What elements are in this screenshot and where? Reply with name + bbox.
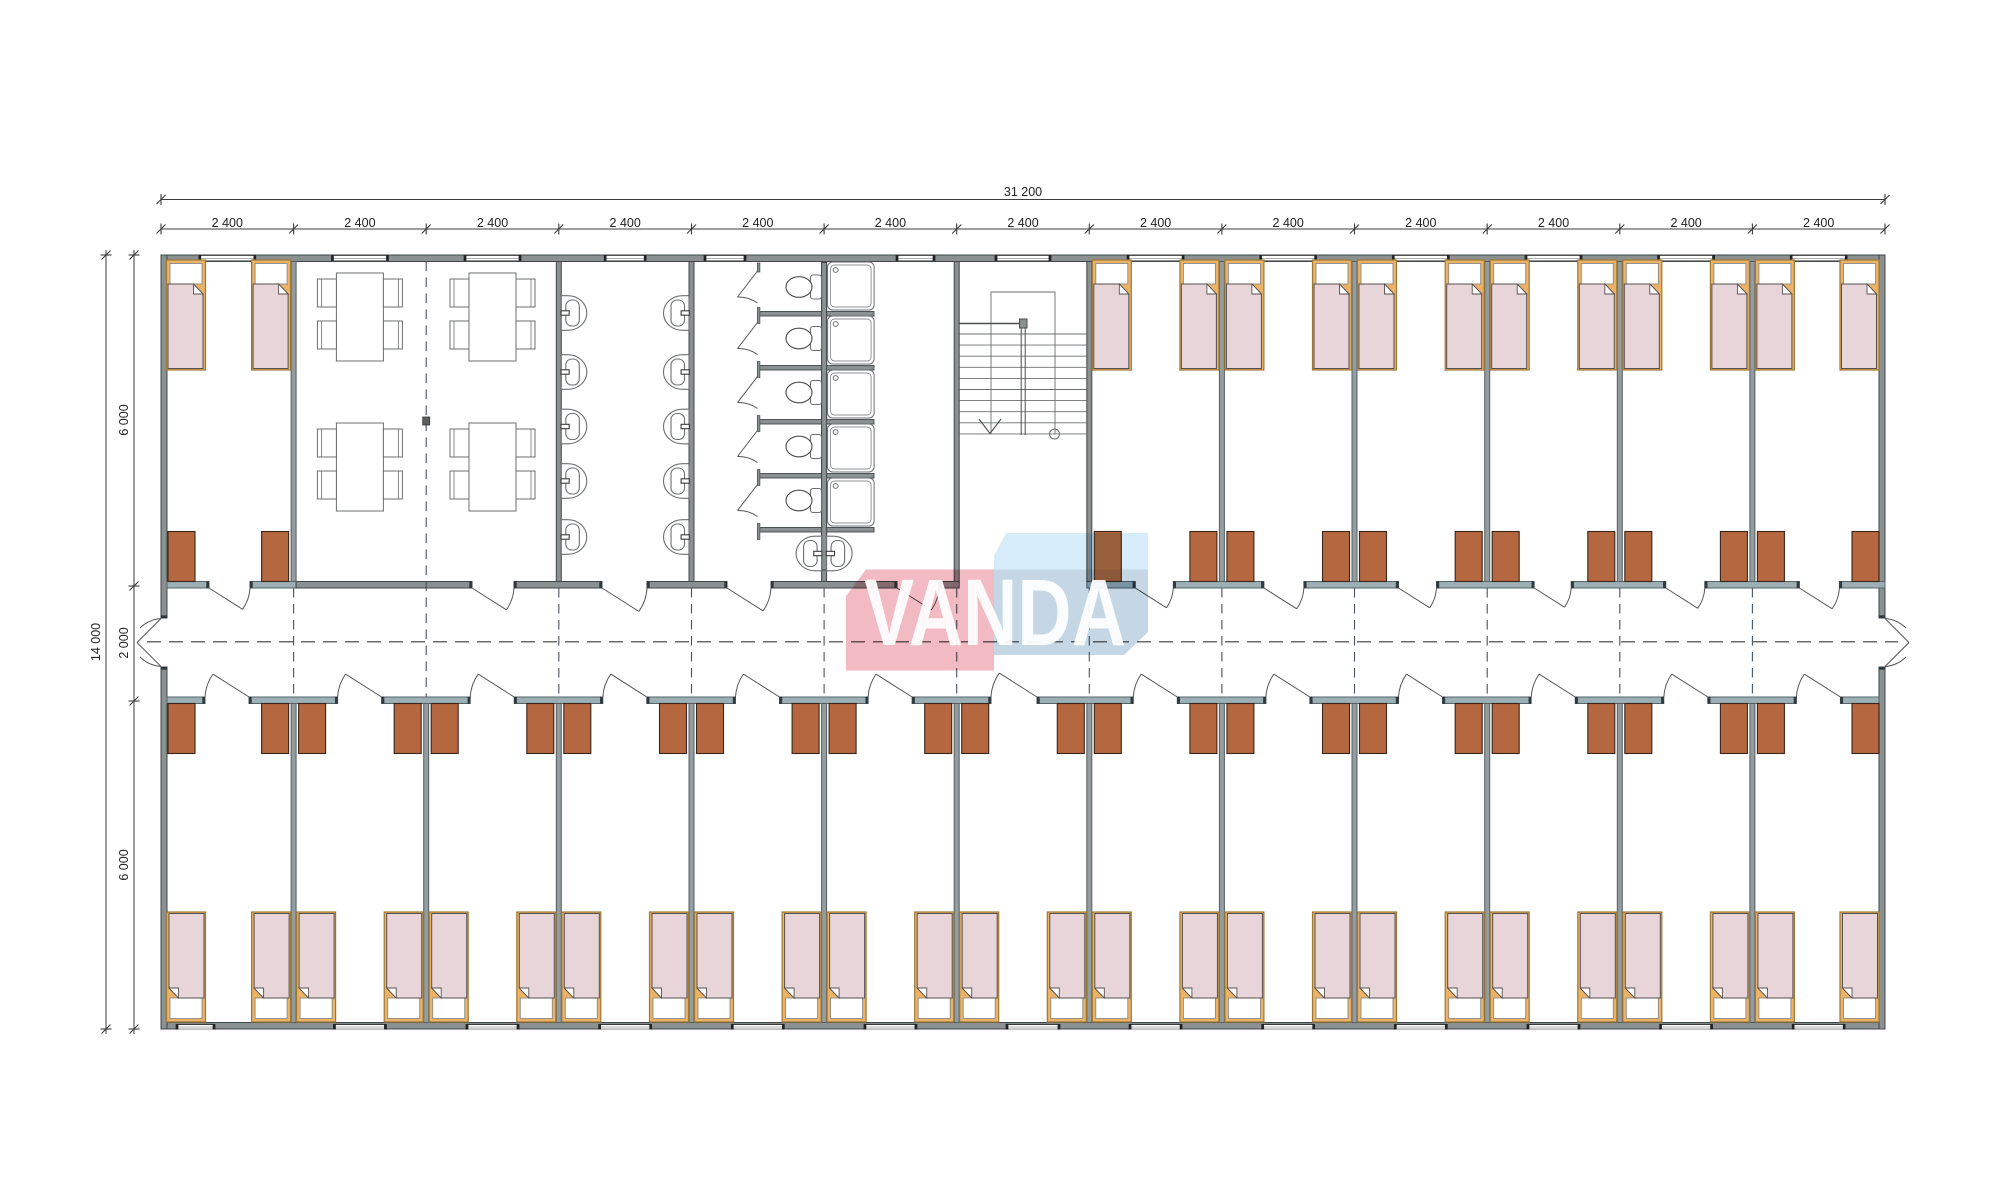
svg-text:2 400: 2 400 [344,216,375,230]
svg-text:2 400: 2 400 [212,216,243,230]
svg-text:VANDA: VANDA [864,561,1126,666]
svg-text:6 000: 6 000 [117,849,131,880]
svg-text:2 400: 2 400 [1273,216,1304,230]
svg-text:14 000: 14 000 [89,623,103,661]
svg-text:2 400: 2 400 [1007,216,1038,230]
svg-text:2 400: 2 400 [1670,216,1701,230]
svg-text:2 400: 2 400 [1405,216,1436,230]
svg-text:2 000: 2 000 [117,627,131,658]
svg-text:2 400: 2 400 [477,216,508,230]
svg-text:2 400: 2 400 [1538,216,1569,230]
svg-text:2 400: 2 400 [1803,216,1834,230]
svg-text:2 400: 2 400 [1140,216,1171,230]
svg-text:2 400: 2 400 [875,216,906,230]
svg-text:2 400: 2 400 [610,216,641,230]
svg-text:2 400: 2 400 [742,216,773,230]
svg-text:31 200: 31 200 [1004,185,1042,199]
svg-text:6 000: 6 000 [117,404,131,435]
